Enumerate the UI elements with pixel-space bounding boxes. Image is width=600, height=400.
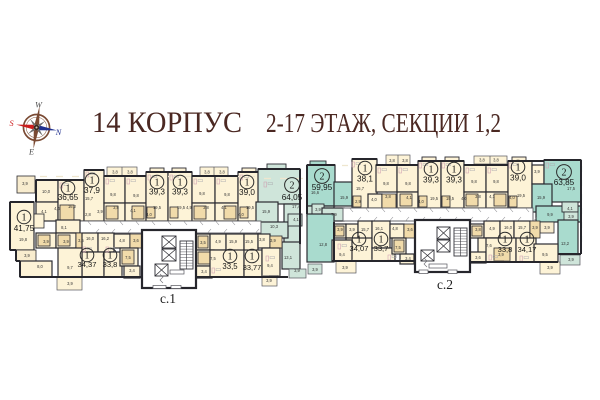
svg-text:2,8: 2,8: [85, 212, 91, 217]
svg-text:38,1: 38,1: [357, 175, 373, 184]
svg-text:15,7: 15,7: [518, 225, 527, 230]
svg-text:1: 1: [245, 177, 250, 188]
svg-text:3,8: 3,8: [479, 158, 485, 163]
svg-text:3,4: 3,4: [129, 268, 135, 273]
svg-text:с.2: с.2: [437, 277, 453, 292]
svg-text:4,0: 4,0: [418, 199, 424, 204]
svg-text:3,8: 3,8: [259, 237, 265, 242]
svg-text:3,8: 3,8: [127, 170, 133, 175]
svg-text:3,8: 3,8: [112, 170, 118, 175]
svg-text:1: 1: [228, 251, 233, 262]
svg-text:34,37: 34,37: [77, 260, 96, 269]
svg-text:4,0: 4,0: [461, 196, 467, 201]
svg-text:39,3: 39,3: [149, 188, 165, 197]
svg-text:33,5: 33,5: [222, 262, 238, 271]
svg-text:34,17: 34,17: [517, 245, 536, 254]
svg-text:3,9: 3,9: [97, 209, 103, 214]
svg-text:7,5: 7,5: [210, 256, 216, 261]
svg-text:39,3: 39,3: [172, 188, 188, 197]
svg-text:4,4: 4,4: [54, 206, 60, 211]
svg-text:9,8: 9,8: [405, 181, 411, 186]
svg-text:S: S: [9, 119, 13, 128]
svg-text:39,0: 39,0: [239, 188, 255, 197]
svg-text:3,4: 3,4: [405, 256, 411, 261]
svg-text:3,9: 3,9: [547, 265, 553, 270]
svg-text:1: 1: [363, 163, 368, 174]
svg-text:4,1: 4,1: [567, 206, 573, 211]
svg-text:64,05: 64,05: [282, 193, 303, 202]
svg-text:4,9: 4,9: [215, 239, 221, 244]
svg-text:3,6: 3,6: [133, 238, 139, 243]
svg-text:8,1: 8,1: [61, 225, 67, 230]
svg-text:3,9: 3,9: [67, 281, 73, 286]
svg-text:10,3: 10,3: [270, 224, 279, 229]
svg-text:36,65: 36,65: [58, 193, 79, 202]
svg-text:13,2: 13,2: [561, 241, 570, 246]
svg-text:9,7: 9,7: [67, 265, 73, 270]
svg-text:4,9: 4,9: [186, 205, 192, 210]
svg-text:41,75: 41,75: [14, 224, 35, 233]
svg-text:15,9: 15,9: [229, 239, 238, 244]
svg-text:63,85: 63,85: [554, 178, 575, 187]
svg-text:9,4: 9,4: [339, 252, 345, 257]
svg-text:3,9: 3,9: [349, 227, 355, 232]
svg-text:1: 1: [22, 212, 27, 223]
svg-text:3,9: 3,9: [315, 207, 321, 212]
svg-text:9,8: 9,8: [133, 193, 139, 198]
svg-text:7,5: 7,5: [125, 255, 131, 260]
svg-text:19,5: 19,5: [246, 205, 255, 210]
svg-text:3,9: 3,9: [294, 268, 300, 273]
svg-text:19,5: 19,5: [446, 196, 455, 201]
svg-text:3,8: 3,8: [475, 227, 481, 232]
svg-text:39,0: 39,0: [510, 174, 526, 183]
svg-text:1: 1: [516, 162, 521, 173]
svg-text:59,95: 59,95: [312, 183, 333, 192]
svg-text:3,6: 3,6: [407, 227, 413, 232]
svg-text:15,9: 15,9: [340, 195, 349, 200]
svg-text:16,2: 16,2: [101, 236, 110, 241]
svg-text:9,8: 9,8: [110, 192, 116, 197]
svg-text:3,4: 3,4: [201, 269, 207, 274]
svg-text:3,8: 3,8: [113, 205, 119, 210]
svg-text:3,9: 3,9: [532, 225, 538, 230]
svg-text:2,9: 2,9: [355, 199, 361, 204]
svg-text:3,9: 3,9: [534, 169, 540, 174]
svg-text:16,0: 16,0: [86, 236, 95, 241]
svg-text:9,4: 9,4: [267, 263, 273, 268]
svg-text:4,0: 4,0: [509, 195, 515, 200]
svg-text:19,5: 19,5: [517, 193, 526, 198]
svg-text:3,6: 3,6: [475, 255, 481, 260]
svg-text:3,9: 3,9: [498, 252, 504, 257]
svg-text:3,8: 3,8: [475, 194, 481, 199]
svg-text:2: 2: [320, 171, 325, 182]
svg-text:4,1: 4,1: [406, 195, 412, 200]
svg-text:3,9: 3,9: [63, 239, 69, 244]
svg-text:3,8: 3,8: [203, 205, 209, 210]
svg-text:16,2: 16,2: [68, 204, 77, 209]
svg-text:3,9: 3,9: [24, 253, 30, 258]
svg-text:3,9: 3,9: [22, 181, 28, 186]
svg-text:4,0: 4,0: [146, 212, 152, 217]
svg-text:19,8: 19,8: [19, 237, 28, 242]
svg-text:7,6: 7,6: [486, 243, 492, 248]
svg-text:4,1: 4,1: [293, 217, 299, 222]
svg-text:16,1: 16,1: [375, 226, 384, 231]
svg-text:1: 1: [452, 164, 457, 175]
svg-text:12,8: 12,8: [319, 242, 328, 247]
svg-text:1: 1: [503, 234, 508, 245]
svg-text:3,8: 3,8: [385, 194, 391, 199]
svg-text:9,9: 9,9: [547, 212, 553, 217]
svg-text:3,8: 3,8: [493, 158, 499, 163]
svg-text:33,7: 33,7: [374, 244, 389, 253]
svg-text:33,8: 33,8: [103, 260, 118, 269]
svg-text:N: N: [55, 128, 62, 137]
svg-text:3,8: 3,8: [219, 170, 225, 175]
svg-text:4,8: 4,8: [119, 238, 125, 243]
svg-text:3,9: 3,9: [337, 227, 343, 232]
svg-text:3,9: 3,9: [270, 238, 276, 243]
svg-text:15,7: 15,7: [356, 186, 365, 191]
svg-text:37,9: 37,9: [84, 186, 100, 195]
svg-text:с.1: с.1: [160, 291, 176, 306]
svg-text:3,6: 3,6: [78, 238, 84, 243]
svg-text:7,9: 7,9: [331, 212, 337, 217]
svg-text:3,8: 3,8: [402, 158, 408, 163]
svg-text:3,8: 3,8: [389, 158, 395, 163]
svg-text:3,9: 3,9: [568, 214, 574, 219]
svg-text:1: 1: [429, 164, 434, 175]
svg-text:16,0: 16,0: [504, 225, 513, 230]
svg-text:4,1: 4,1: [41, 209, 47, 214]
svg-text:9,8: 9,8: [383, 181, 389, 186]
svg-text:15,9: 15,9: [537, 195, 546, 200]
svg-text:3,9: 3,9: [342, 265, 348, 270]
svg-text:34,07: 34,07: [349, 244, 368, 253]
svg-text:3,9: 3,9: [312, 267, 318, 272]
svg-text:2-17 ЭТАЖ, СЕКЦИИ 1,2: 2-17 ЭТАЖ, СЕКЦИИ 1,2: [266, 108, 501, 138]
svg-text:3,8: 3,8: [204, 170, 210, 175]
svg-text:10,0: 10,0: [42, 189, 51, 194]
svg-text:15,5: 15,5: [245, 239, 254, 244]
svg-text:2: 2: [290, 180, 295, 191]
svg-text:3,9: 3,9: [43, 239, 49, 244]
svg-text:39,3: 39,3: [446, 176, 462, 185]
svg-text:19,5: 19,5: [153, 205, 162, 210]
svg-text:4,1: 4,1: [130, 208, 136, 213]
svg-text:4,0: 4,0: [371, 197, 377, 202]
svg-text:9,5: 9,5: [542, 252, 548, 257]
svg-text:19,5: 19,5: [177, 205, 186, 210]
svg-text:4,1: 4,1: [489, 194, 495, 199]
svg-text:8,0: 8,0: [37, 264, 43, 269]
svg-text:W: W: [35, 101, 43, 110]
svg-text:1: 1: [90, 175, 95, 186]
svg-text:3,9: 3,9: [568, 257, 574, 262]
svg-text:E: E: [28, 148, 34, 157]
svg-text:33,77: 33,77: [243, 263, 262, 272]
svg-text:9,8: 9,8: [199, 191, 205, 196]
svg-text:39,3: 39,3: [423, 176, 439, 185]
svg-text:19,5: 19,5: [430, 196, 439, 201]
svg-text:13,1: 13,1: [284, 255, 293, 260]
svg-text:9,8: 9,8: [493, 179, 499, 184]
svg-text:17,4: 17,4: [292, 204, 301, 209]
svg-text:3,5: 3,5: [200, 240, 206, 245]
svg-text:4,1: 4,1: [221, 205, 227, 210]
svg-text:9,8: 9,8: [224, 192, 230, 197]
svg-text:15,7: 15,7: [361, 227, 370, 232]
svg-text:1: 1: [250, 251, 255, 262]
svg-text:2: 2: [562, 167, 567, 178]
svg-text:4,9: 4,9: [489, 226, 495, 231]
svg-text:14 КОРПУС: 14 КОРПУС: [92, 106, 242, 139]
svg-text:15,7: 15,7: [85, 196, 94, 201]
svg-text:15,9: 15,9: [262, 209, 271, 214]
svg-text:1: 1: [525, 234, 530, 245]
svg-text:7,5: 7,5: [395, 245, 401, 250]
svg-text:3,9: 3,9: [266, 278, 272, 283]
svg-text:3,9: 3,9: [544, 225, 550, 230]
svg-text:4,8: 4,8: [392, 226, 398, 231]
svg-text:4,0: 4,0: [238, 212, 244, 217]
svg-text:9,8: 9,8: [471, 179, 477, 184]
